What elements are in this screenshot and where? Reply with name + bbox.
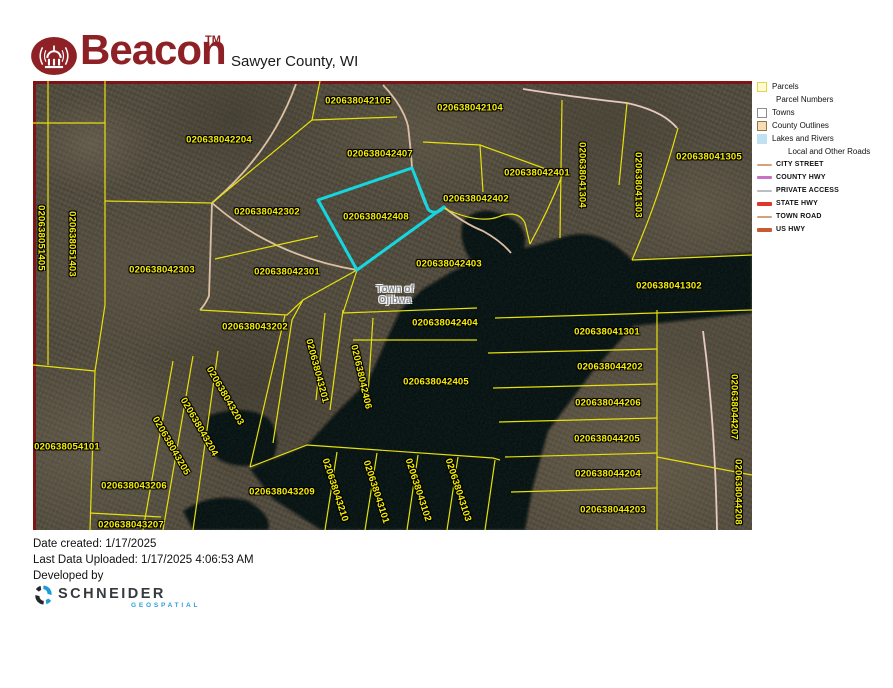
parcel-number-label: 020638051405 bbox=[36, 205, 47, 271]
legend-item: CITY STREET bbox=[757, 158, 893, 171]
legend-item: Local and Other Roads bbox=[757, 145, 893, 158]
legend-line-swatch bbox=[757, 202, 772, 206]
legend-item: US HWY bbox=[757, 223, 893, 236]
parcel-number-label: 020638044207 bbox=[729, 374, 740, 440]
parcel-number-label: 020638042408 bbox=[343, 212, 409, 223]
parcel-number-label: 020638042401 bbox=[504, 168, 570, 179]
parcel-number-label: 020638044205 bbox=[574, 434, 640, 445]
page-title: Sawyer County, WI bbox=[231, 53, 358, 70]
schneider-logo: SCHNEIDER GEOSPATIAL bbox=[33, 584, 253, 616]
legend-item: Parcel Numbers bbox=[757, 93, 893, 106]
legend-item: Parcels bbox=[757, 80, 893, 93]
parcel-number-label: 020638041302 bbox=[636, 281, 702, 292]
parcel-number-label: 020638041303 bbox=[633, 152, 644, 218]
legend-item: TOWN ROAD bbox=[757, 210, 893, 223]
parcel-number-label: 020638042407 bbox=[347, 149, 413, 160]
parcel-number-label: 020638043209 bbox=[249, 487, 315, 498]
town-name-label: Town of Ojibwa bbox=[376, 284, 414, 306]
parcel-number-label: 020638041301 bbox=[574, 327, 640, 338]
parcel-number-label: 020638042303 bbox=[129, 265, 195, 276]
parcel-number-label: 020638044204 bbox=[575, 469, 641, 480]
last-uploaded-text: Last Data Uploaded: 1/17/2025 4:06:53 AM bbox=[33, 554, 254, 566]
parcel-number-label: 020638042403 bbox=[416, 259, 482, 270]
parcel-number-label: 020638041304 bbox=[577, 142, 588, 208]
parcel-number-label: 020638042204 bbox=[186, 135, 252, 146]
parcel-number-label: 020638042301 bbox=[254, 267, 320, 278]
parcel-number-label: 020638051403 bbox=[67, 211, 78, 277]
parcel-number-label: 020638043207 bbox=[98, 520, 164, 531]
parcel-number-label: 020638044206 bbox=[575, 398, 641, 409]
developed-by-text: Developed by bbox=[33, 570, 103, 582]
legend-swatch bbox=[757, 134, 767, 144]
legend-line-swatch bbox=[757, 190, 772, 192]
parcel-number-label: 020638042104 bbox=[437, 103, 503, 114]
legend-item: PRIVATE ACCESS bbox=[757, 184, 893, 197]
legend-swatch bbox=[757, 82, 767, 92]
parcel-number-label: 020638044202 bbox=[577, 362, 643, 373]
legend-items: ParcelsParcel NumbersTownsCounty Outline… bbox=[757, 80, 893, 236]
legend-label: CITY STREET bbox=[776, 161, 824, 168]
map-legend: ParcelsParcel NumbersTownsCounty Outline… bbox=[757, 80, 893, 236]
legend-label: US HWY bbox=[776, 226, 805, 233]
report-page: Beacon TM Sawyer County, WI bbox=[0, 0, 893, 688]
legend-item: Lakes and Rivers bbox=[757, 132, 893, 145]
header: Beacon TM Sawyer County, WI bbox=[0, 0, 893, 80]
legend-line-swatch bbox=[757, 216, 772, 218]
legend-swatch bbox=[757, 108, 767, 118]
legend-label: PRIVATE ACCESS bbox=[776, 187, 839, 194]
date-created-text: Date created: 1/17/2025 bbox=[33, 538, 156, 550]
legend-item: STATE HWY bbox=[757, 197, 893, 210]
schneider-sub-text: GEOSPATIAL bbox=[131, 602, 200, 609]
parcel-number-label: 020638044203 bbox=[580, 505, 646, 516]
legend-label: Towns bbox=[772, 108, 795, 117]
parcel-number-label: 020638043202 bbox=[222, 322, 288, 333]
legend-item: Towns bbox=[757, 106, 893, 119]
beacon-brand-text: Beacon bbox=[80, 26, 226, 74]
legend-item: County Outlines bbox=[757, 119, 893, 132]
parcel-number-label: 020638054101 bbox=[34, 442, 100, 453]
parcel-number-label: 020638042405 bbox=[403, 377, 469, 388]
legend-label: Parcels bbox=[772, 82, 799, 91]
legend-line-swatch bbox=[757, 228, 772, 232]
parcel-number-label: 020638043206 bbox=[101, 481, 167, 492]
legend-label: Parcel Numbers bbox=[776, 95, 833, 104]
legend-label: Lakes and Rivers bbox=[772, 134, 834, 143]
legend-label: STATE HWY bbox=[776, 200, 818, 207]
legend-label: TOWN ROAD bbox=[776, 213, 822, 220]
parcel-number-label: 020638042105 bbox=[325, 96, 391, 107]
legend-item: COUNTY HWY bbox=[757, 171, 893, 184]
parcel-map-image: Town of Ojibwa 0206380421050206380421040… bbox=[33, 81, 752, 530]
legend-label: COUNTY HWY bbox=[776, 174, 826, 181]
legend-label: County Outlines bbox=[772, 121, 829, 130]
legend-line-swatch bbox=[757, 176, 772, 179]
legend-line-swatch bbox=[757, 164, 772, 166]
parcel-number-label: 020638042302 bbox=[234, 207, 300, 218]
schneider-brand-text: SCHNEIDER bbox=[58, 586, 166, 602]
legend-label: Local and Other Roads bbox=[788, 147, 870, 156]
parcel-number-label: 020638042404 bbox=[412, 318, 478, 329]
parcel-number-label: 020638041305 bbox=[676, 152, 742, 163]
parcel-number-label: 020638042402 bbox=[443, 194, 509, 205]
parcel-number-label: 020638044208 bbox=[733, 459, 744, 525]
beacon-trademark: TM bbox=[205, 34, 221, 46]
legend-swatch bbox=[757, 121, 767, 131]
schneider-swirl-icon bbox=[33, 584, 54, 606]
beacon-logo-icon bbox=[30, 36, 78, 76]
